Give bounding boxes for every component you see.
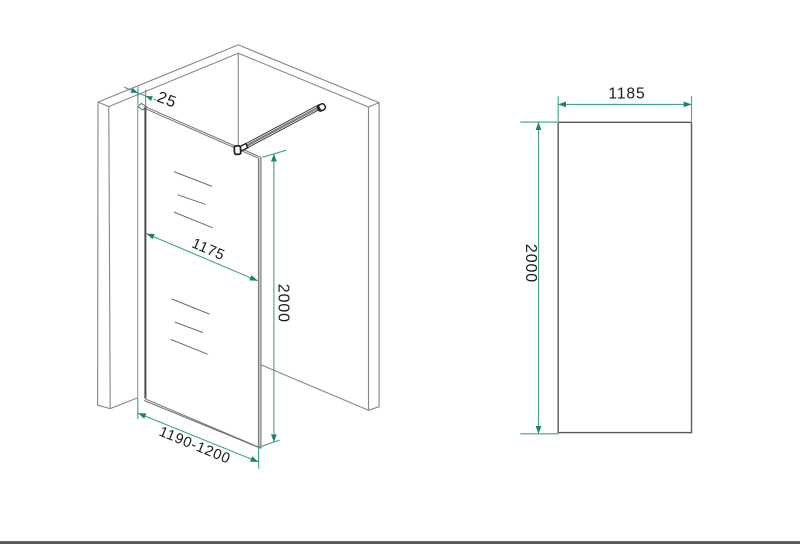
- svg-text:2000: 2000: [522, 244, 539, 283]
- svg-text:1185: 1185: [608, 86, 645, 103]
- svg-text:2000: 2000: [275, 284, 292, 323]
